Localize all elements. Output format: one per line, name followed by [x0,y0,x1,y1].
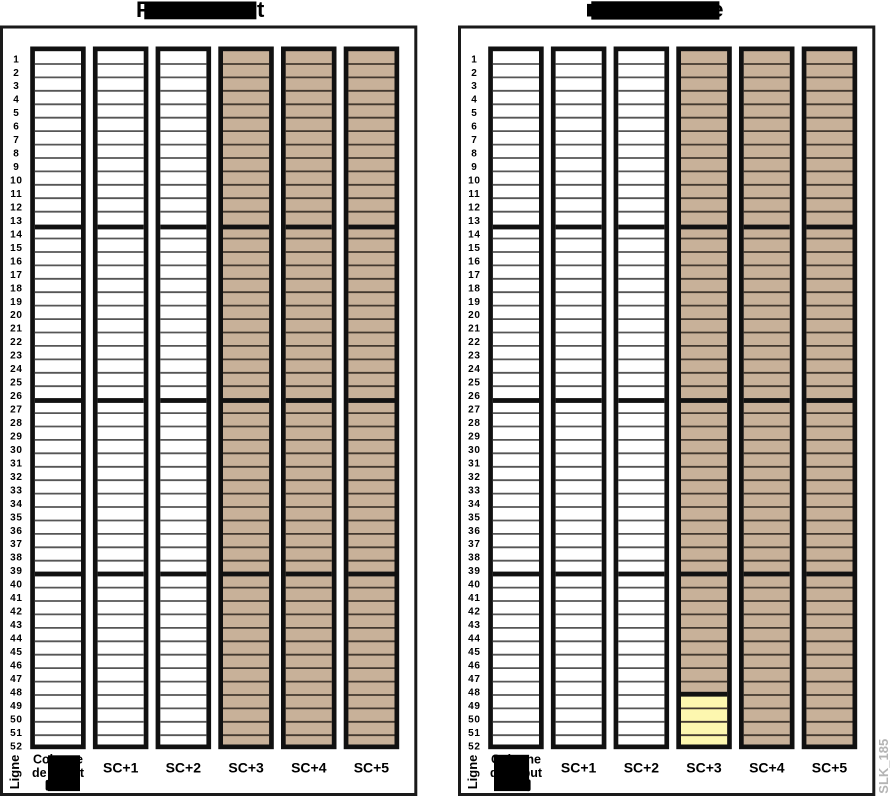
svg-text:16: 16 [10,256,23,267]
svg-text:6: 6 [13,122,19,133]
svg-text:52: 52 [10,741,23,752]
svg-text:42: 42 [468,607,481,618]
svg-text:26: 26 [468,391,481,402]
svg-text:35: 35 [10,512,23,523]
svg-text:18: 18 [10,283,23,294]
svg-text:46: 46 [10,660,23,671]
svg-text:50: 50 [468,714,481,725]
svg-text:25: 25 [468,378,481,389]
svg-text:13: 13 [10,216,23,227]
svg-text:43: 43 [10,620,23,631]
svg-text:30: 30 [468,445,481,456]
svg-text:46: 46 [468,660,481,671]
svg-text:52: 52 [468,741,481,752]
svg-text:29: 29 [468,431,481,442]
svg-text:21: 21 [468,324,481,335]
svg-text:17: 17 [468,270,481,281]
svg-text:12: 12 [468,202,481,213]
svg-text:30: 30 [10,445,23,456]
svg-text:SC+5: SC+5 [812,759,848,775]
svg-text:5: 5 [13,108,19,119]
svg-text:14: 14 [10,229,23,240]
svg-text:11: 11 [10,189,22,200]
svg-text:45: 45 [10,647,23,658]
svg-text:40: 40 [10,580,23,591]
svg-text:39: 39 [10,566,23,577]
svg-text:SC+4: SC+4 [291,759,327,775]
svg-text:28: 28 [468,418,481,429]
svg-text:SC+5: SC+5 [354,759,390,775]
svg-text:11: 11 [468,189,480,200]
svg-text:7: 7 [471,135,477,146]
svg-text:24: 24 [468,364,481,375]
svg-text:32: 32 [468,472,481,483]
svg-text:16: 16 [468,256,481,267]
svg-text:5: 5 [471,108,477,119]
svg-text:8: 8 [471,149,477,160]
svg-text:20: 20 [468,310,481,321]
svg-text:32: 32 [10,472,23,483]
svg-text:22: 22 [468,337,481,348]
svg-text:15: 15 [468,243,481,254]
svg-text:8: 8 [13,149,19,160]
svg-text:37: 37 [468,539,481,550]
svg-text:7: 7 [13,135,19,146]
svg-text:19: 19 [468,297,481,308]
svg-text:38: 38 [10,553,23,564]
svg-text:SC+1: SC+1 [561,759,597,775]
svg-text:25: 25 [10,378,23,389]
svg-text:27: 27 [468,405,481,416]
svg-text:10: 10 [10,176,23,187]
svg-text:13: 13 [468,216,481,227]
svg-text:9: 9 [13,162,19,173]
svg-text:47: 47 [10,674,23,685]
svg-text:2: 2 [13,68,19,79]
svg-text:SC+3: SC+3 [228,759,264,775]
svg-text:39: 39 [468,566,481,577]
svg-text:14: 14 [468,229,481,240]
svg-text:41: 41 [468,593,481,604]
svg-text:34: 34 [10,499,23,510]
svg-text:23: 23 [10,351,23,362]
svg-text:SC+2: SC+2 [624,759,660,775]
svg-text:34: 34 [468,499,481,510]
svg-text:45: 45 [468,647,481,658]
svg-text:6: 6 [471,122,477,133]
svg-text:31: 31 [468,458,481,469]
svg-text:Ligne: Ligne [465,755,480,790]
svg-text:41: 41 [10,593,23,604]
svg-text:33: 33 [10,485,23,496]
svg-text:28: 28 [10,418,23,429]
svg-text:20: 20 [10,310,23,321]
svg-text:47: 47 [468,674,481,685]
svg-text:51: 51 [468,728,481,739]
svg-text:37: 37 [10,539,23,550]
svg-text:3: 3 [13,81,19,92]
svg-text:42: 42 [10,607,23,618]
svg-text:18: 18 [468,283,481,294]
svg-text:19: 19 [10,297,23,308]
svg-text:Ligne: Ligne [7,755,22,790]
svg-text:15: 15 [10,243,23,254]
svg-text:44: 44 [10,634,23,645]
svg-text:26: 26 [10,391,23,402]
svg-text:21: 21 [10,324,23,335]
svg-text:SC+4: SC+4 [749,759,785,775]
svg-text:SLK_185: SLK_185 [876,739,891,794]
svg-text:49: 49 [468,701,481,712]
svg-text:29: 29 [10,431,23,442]
svg-text:44: 44 [468,634,481,645]
svg-text:36: 36 [468,526,481,537]
svg-text:1: 1 [471,54,477,65]
svg-text:24: 24 [10,364,23,375]
svg-text:35: 35 [468,512,481,523]
svg-text:36: 36 [10,526,23,537]
svg-text:33: 33 [468,485,481,496]
svg-text:2: 2 [471,68,477,79]
svg-text:4: 4 [471,95,477,106]
svg-text:1: 1 [13,54,19,65]
svg-text:48: 48 [468,687,481,698]
svg-text:SC+2: SC+2 [166,759,202,775]
svg-text:9: 9 [471,162,477,173]
svg-text:3: 3 [471,81,477,92]
svg-text:t: t [257,0,265,22]
svg-text:43: 43 [468,620,481,631]
svg-text:48: 48 [10,687,23,698]
svg-text:40: 40 [468,580,481,591]
svg-text:4: 4 [13,95,19,106]
svg-text:50: 50 [10,714,23,725]
svg-text:49: 49 [10,701,23,712]
svg-text:22: 22 [10,337,23,348]
svg-text:10: 10 [468,176,481,187]
svg-text:51: 51 [10,728,23,739]
svg-text:38: 38 [468,553,481,564]
svg-text:SC+3: SC+3 [686,759,722,775]
svg-text:23: 23 [468,351,481,362]
svg-text:27: 27 [10,405,23,416]
svg-text:SC+1: SC+1 [103,759,139,775]
svg-text:17: 17 [10,270,23,281]
svg-text:12: 12 [10,202,23,213]
svg-text:31: 31 [10,458,23,469]
